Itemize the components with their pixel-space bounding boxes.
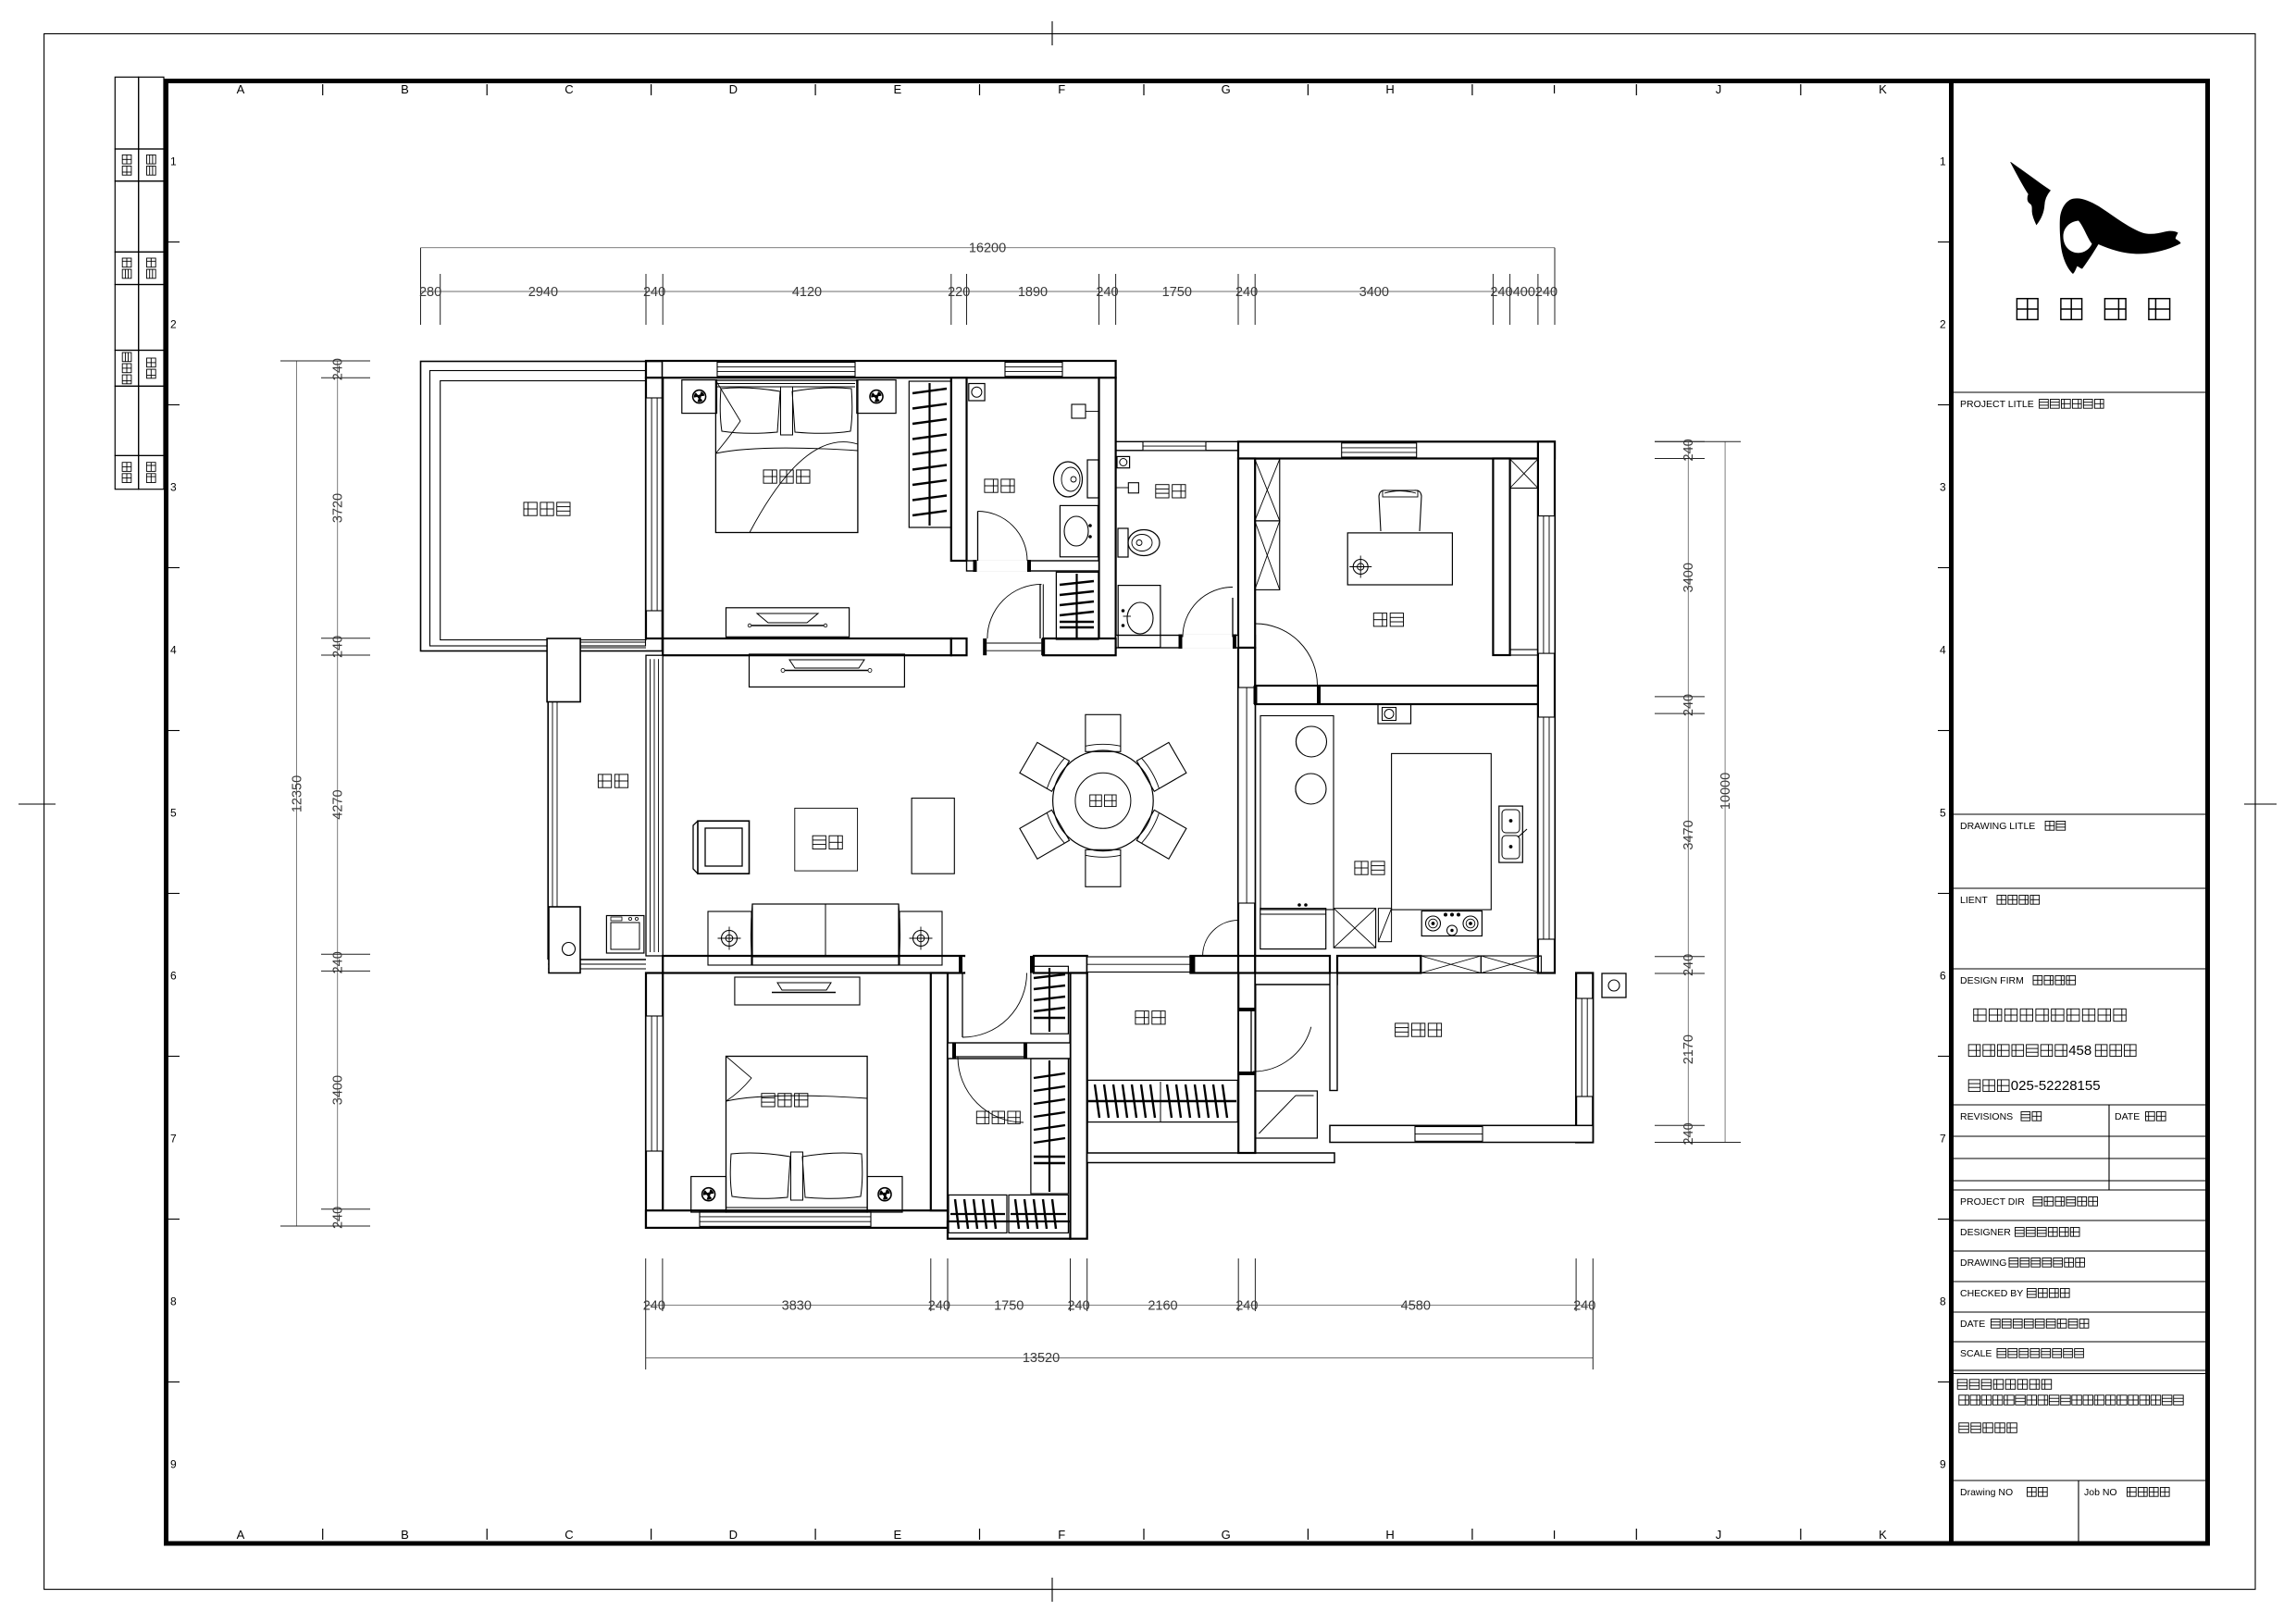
svg-text:240: 240: [1067, 1299, 1089, 1314]
svg-text:Job NO: Job NO: [2084, 1487, 2117, 1498]
svg-text:240: 240: [1535, 285, 1558, 300]
svg-text:240: 240: [331, 636, 346, 658]
svg-text:10000: 10000: [1719, 773, 1733, 810]
svg-text:280: 280: [419, 285, 441, 300]
svg-text:K: K: [1879, 1528, 1887, 1542]
svg-text:3470: 3470: [1682, 820, 1696, 849]
svg-text:240: 240: [1490, 285, 1512, 300]
svg-text:240: 240: [1682, 694, 1696, 716]
svg-text:9: 9: [1940, 1458, 1946, 1471]
svg-text:A: A: [237, 1528, 245, 1542]
svg-text:240: 240: [643, 1299, 665, 1314]
svg-text:PROJECT DIR: PROJECT DIR: [1960, 1196, 2025, 1208]
svg-text:A: A: [237, 82, 245, 96]
svg-text:025-52228155: 025-52228155: [2011, 1078, 2101, 1094]
svg-text:4: 4: [170, 644, 177, 657]
svg-text:REVISIONS: REVISIONS: [1960, 1111, 2013, 1122]
svg-text:3: 3: [170, 481, 177, 494]
svg-text:2940: 2940: [528, 285, 558, 300]
svg-text:F: F: [1058, 82, 1065, 96]
svg-text:6: 6: [1940, 970, 1946, 983]
svg-text:240: 240: [928, 1299, 950, 1314]
svg-text:B: B: [401, 1528, 409, 1542]
svg-text:240: 240: [1573, 1299, 1595, 1314]
svg-text:240: 240: [1235, 285, 1258, 300]
svg-text:240: 240: [1096, 285, 1118, 300]
svg-text:4120: 4120: [792, 285, 822, 300]
svg-text:DRAWING LITLE: DRAWING LITLE: [1960, 821, 2035, 832]
svg-text:DRAWING: DRAWING: [1960, 1258, 2006, 1269]
svg-text:G: G: [1222, 1528, 1231, 1542]
svg-text:DESIGNER: DESIGNER: [1960, 1227, 2011, 1238]
svg-text:C: C: [565, 82, 573, 96]
svg-text:G: G: [1222, 82, 1231, 96]
svg-text:B: B: [401, 82, 409, 96]
svg-text:H: H: [1385, 82, 1394, 96]
svg-text:1: 1: [170, 155, 177, 168]
svg-text:3400: 3400: [331, 1075, 346, 1105]
svg-text:Drawing NO: Drawing NO: [1960, 1487, 2013, 1498]
svg-text:J: J: [1716, 1528, 1722, 1542]
svg-text:K: K: [1879, 82, 1887, 96]
svg-text:I: I: [1553, 82, 1557, 96]
svg-text:7: 7: [1940, 1133, 1946, 1146]
svg-text:DATE: DATE: [1960, 1319, 1985, 1330]
svg-text:16200: 16200: [969, 242, 1006, 256]
svg-text:458: 458: [2068, 1043, 2091, 1059]
svg-text:I: I: [1553, 1528, 1557, 1542]
svg-text:7: 7: [170, 1133, 177, 1146]
svg-text:3400: 3400: [1359, 285, 1389, 300]
svg-text:DESIGN FIRM: DESIGN FIRM: [1960, 975, 2024, 986]
svg-text:6: 6: [170, 970, 177, 983]
svg-text:12350: 12350: [291, 775, 305, 812]
svg-text:PROJECT LITLE: PROJECT LITLE: [1960, 399, 2034, 410]
svg-text:DATE: DATE: [2115, 1111, 2140, 1122]
svg-text:220: 220: [948, 285, 970, 300]
svg-text:CHECKED BY: CHECKED BY: [1960, 1288, 2023, 1299]
svg-text:240: 240: [331, 1207, 346, 1229]
svg-text:240: 240: [331, 358, 346, 380]
svg-text:LIENT: LIENT: [1960, 895, 1988, 906]
svg-text:C: C: [565, 1528, 573, 1542]
svg-text:240: 240: [1682, 954, 1696, 976]
svg-text:8: 8: [170, 1295, 177, 1308]
svg-text:E: E: [893, 82, 901, 96]
svg-text:D: D: [729, 1528, 738, 1542]
svg-text:2: 2: [1940, 318, 1946, 331]
svg-text:F: F: [1058, 1528, 1065, 1542]
svg-text:H: H: [1385, 1528, 1394, 1542]
svg-text:9: 9: [170, 1458, 177, 1471]
svg-text:240: 240: [1682, 1122, 1696, 1145]
svg-text:E: E: [893, 1528, 901, 1542]
svg-text:SCALE: SCALE: [1960, 1348, 1992, 1359]
svg-text:240: 240: [643, 285, 665, 300]
svg-text:2160: 2160: [1148, 1299, 1177, 1314]
svg-text:240: 240: [1235, 1299, 1258, 1314]
svg-text:1750: 1750: [1162, 285, 1192, 300]
svg-text:J: J: [1716, 82, 1722, 96]
svg-text:13520: 13520: [1023, 1351, 1060, 1366]
svg-text:1890: 1890: [1018, 285, 1048, 300]
svg-text:1750: 1750: [994, 1299, 1024, 1314]
svg-text:4270: 4270: [331, 789, 346, 819]
svg-text:4: 4: [1940, 644, 1946, 657]
svg-text:1: 1: [1940, 155, 1946, 168]
svg-text:400: 400: [1513, 285, 1535, 300]
svg-text:D: D: [729, 82, 738, 96]
svg-text:3720: 3720: [331, 493, 346, 523]
svg-text:3400: 3400: [1682, 563, 1696, 592]
svg-text:4580: 4580: [1401, 1299, 1431, 1314]
svg-text:240: 240: [1682, 439, 1696, 461]
svg-text:240: 240: [331, 951, 346, 973]
svg-text:3830: 3830: [782, 1299, 812, 1314]
svg-text:8: 8: [1940, 1295, 1946, 1308]
svg-text:5: 5: [170, 807, 177, 820]
svg-text:3: 3: [1940, 481, 1946, 494]
svg-text:2170: 2170: [1682, 1035, 1696, 1064]
svg-text:5: 5: [1940, 807, 1946, 820]
svg-text:2: 2: [170, 318, 177, 331]
